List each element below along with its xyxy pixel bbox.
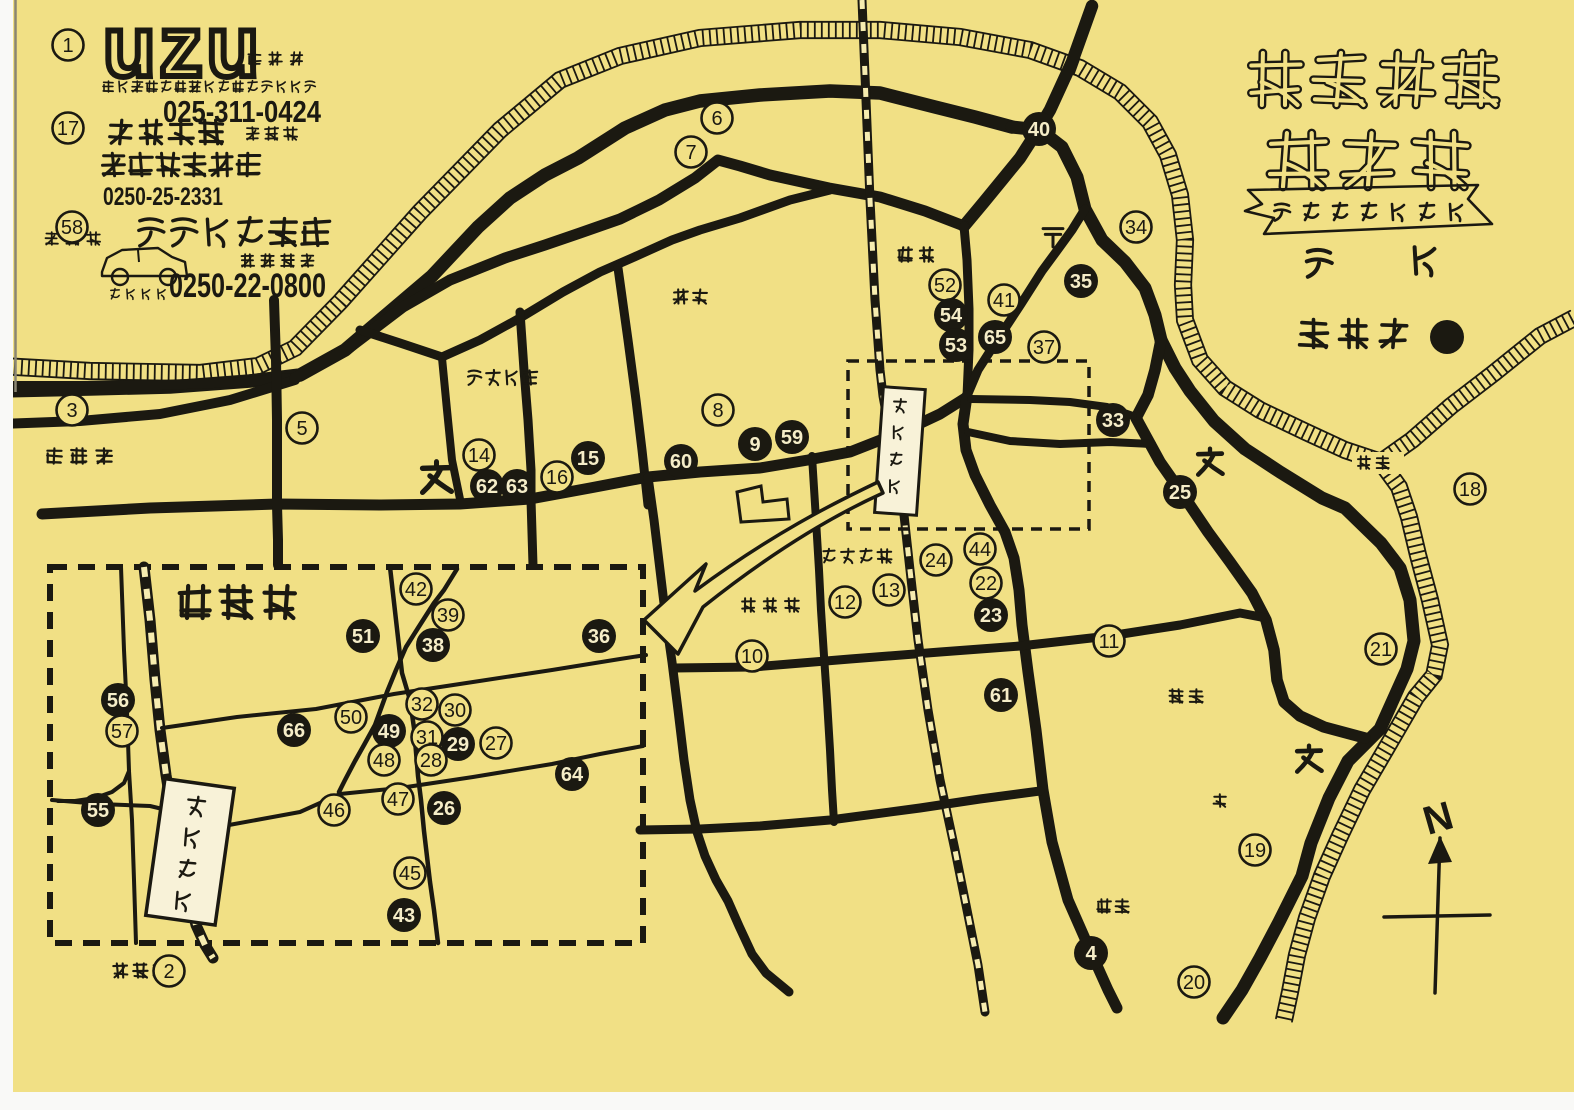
- svg-text:30: 30: [444, 700, 466, 722]
- svg-text:55: 55: [87, 800, 109, 822]
- svg-text:32: 32: [411, 694, 433, 716]
- svg-text:9: 9: [749, 434, 760, 456]
- svg-text:13: 13: [878, 580, 900, 602]
- svg-text:15: 15: [577, 448, 599, 470]
- svg-text:8: 8: [712, 400, 723, 422]
- svg-text:5: 5: [296, 418, 307, 440]
- svg-text:35: 35: [1070, 271, 1092, 293]
- svg-text:52: 52: [934, 275, 956, 297]
- svg-text:46: 46: [323, 800, 345, 822]
- svg-text:51: 51: [352, 626, 374, 648]
- svg-text:54: 54: [940, 305, 963, 327]
- svg-text:20: 20: [1183, 972, 1205, 994]
- svg-text:62: 62: [476, 476, 498, 498]
- svg-text:44: 44: [969, 539, 991, 561]
- svg-text:41: 41: [993, 290, 1015, 312]
- svg-text:45: 45: [399, 863, 421, 885]
- svg-text:48: 48: [373, 750, 395, 772]
- svg-text:2: 2: [163, 961, 174, 983]
- svg-text:0250-25-2331: 0250-25-2331: [103, 183, 223, 211]
- svg-text:1: 1: [62, 35, 73, 57]
- svg-text:16: 16: [546, 467, 568, 489]
- svg-text:61: 61: [990, 685, 1012, 707]
- svg-text:17: 17: [57, 118, 79, 140]
- svg-text:63: 63: [506, 476, 528, 498]
- svg-text:19: 19: [1244, 840, 1266, 862]
- svg-text:29: 29: [447, 734, 469, 756]
- svg-text:23: 23: [980, 605, 1002, 627]
- svg-text:12: 12: [834, 592, 856, 614]
- svg-text:33: 33: [1102, 410, 1124, 432]
- svg-text:3: 3: [66, 400, 77, 422]
- svg-text:11: 11: [1099, 631, 1120, 653]
- svg-text:36: 36: [588, 626, 610, 648]
- svg-text:49: 49: [378, 721, 400, 743]
- svg-text:22: 22: [975, 573, 997, 595]
- svg-text:42: 42: [405, 579, 427, 601]
- svg-text:10: 10: [741, 646, 763, 668]
- svg-text:64: 64: [561, 764, 584, 786]
- svg-text:60: 60: [670, 451, 692, 473]
- svg-text:26: 26: [433, 798, 455, 820]
- svg-text:57: 57: [111, 721, 133, 743]
- svg-text:18: 18: [1459, 479, 1481, 501]
- svg-text:58: 58: [61, 217, 83, 239]
- svg-text:25: 25: [1169, 482, 1191, 504]
- svg-text:28: 28: [420, 750, 442, 772]
- svg-text:56: 56: [107, 690, 129, 712]
- svg-text:40: 40: [1028, 119, 1050, 141]
- svg-text:66: 66: [283, 720, 305, 742]
- svg-text:7: 7: [685, 142, 696, 164]
- svg-text:6: 6: [711, 108, 722, 130]
- svg-text:37: 37: [1033, 337, 1055, 359]
- svg-text:4: 4: [1085, 943, 1097, 965]
- svg-text:50: 50: [340, 707, 362, 729]
- svg-text:0250-22-0800: 0250-22-0800: [169, 267, 326, 305]
- svg-text:38: 38: [422, 635, 444, 657]
- svg-text:27: 27: [485, 733, 507, 755]
- svg-text:59: 59: [781, 427, 803, 449]
- svg-text:14: 14: [468, 445, 490, 467]
- svg-text:43: 43: [393, 905, 415, 927]
- svg-text:24: 24: [925, 550, 947, 572]
- svg-text:53: 53: [945, 335, 967, 357]
- svg-text:39: 39: [437, 605, 459, 627]
- svg-text:34: 34: [1125, 217, 1147, 239]
- svg-text:21: 21: [1370, 639, 1392, 661]
- svg-text:47: 47: [387, 789, 409, 811]
- svg-text:65: 65: [984, 327, 1006, 349]
